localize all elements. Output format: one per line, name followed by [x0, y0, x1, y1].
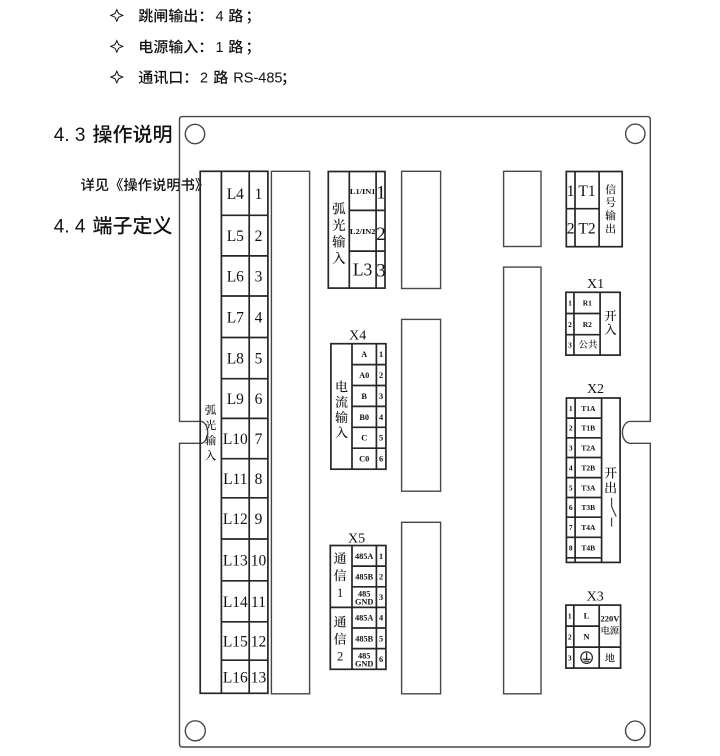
svg-text:X4: X4 — [349, 328, 366, 343]
svg-text:L4: L4 — [227, 186, 244, 203]
svg-text:C0: C0 — [359, 455, 369, 464]
svg-text:B: B — [361, 392, 367, 401]
svg-text:R1: R1 — [583, 299, 592, 308]
svg-text:9: 9 — [255, 511, 263, 528]
svg-text:3: 3 — [568, 341, 572, 350]
svg-text:2: 2 — [376, 224, 386, 245]
svg-text:L1/IN1: L1/IN1 — [350, 187, 376, 196]
svg-text:485A: 485A — [355, 552, 373, 561]
svg-text:X2: X2 — [587, 382, 604, 397]
svg-text:1: 1 — [376, 182, 386, 203]
svg-text:1: 1 — [255, 186, 263, 203]
svg-text:7: 7 — [569, 523, 573, 532]
svg-text:N: N — [583, 632, 590, 642]
svg-text:3: 3 — [568, 653, 572, 662]
svg-text:T4B: T4B — [581, 543, 595, 552]
svg-text:L6: L6 — [227, 269, 244, 286]
svg-text:L15: L15 — [223, 634, 248, 651]
svg-text:3: 3 — [569, 443, 573, 452]
svg-text:3: 3 — [379, 392, 383, 401]
svg-text:C: C — [361, 434, 367, 443]
svg-text:T1: T1 — [578, 183, 595, 200]
svg-text:T3A: T3A — [581, 483, 596, 492]
svg-text:L12: L12 — [223, 511, 248, 528]
svg-text:1: 1 — [215, 40, 223, 56]
svg-text:L16: L16 — [223, 669, 248, 686]
svg-text:2: 2 — [255, 228, 263, 245]
svg-text:4: 4 — [379, 614, 383, 623]
svg-text:T3B: T3B — [581, 503, 595, 512]
svg-text:10: 10 — [251, 553, 267, 570]
svg-text:4: 4 — [379, 413, 383, 422]
svg-text:T4A: T4A — [581, 523, 596, 532]
svg-text:L7: L7 — [227, 309, 244, 326]
svg-text:3: 3 — [379, 593, 383, 602]
svg-text:485B: 485B — [355, 572, 373, 581]
svg-text:4: 4 — [569, 463, 573, 472]
svg-text:L10: L10 — [223, 431, 248, 448]
svg-text:R2: R2 — [583, 320, 592, 329]
svg-text:GND: GND — [355, 660, 373, 669]
svg-text:12: 12 — [251, 634, 267, 651]
svg-text:L: L — [584, 611, 590, 621]
svg-text:L14: L14 — [223, 594, 248, 611]
svg-text:5: 5 — [569, 483, 573, 492]
svg-text:X3: X3 — [587, 589, 604, 604]
svg-text:A0: A0 — [359, 371, 369, 380]
svg-text:A: A — [361, 350, 367, 359]
svg-text:T1A: T1A — [581, 404, 596, 413]
svg-text:2: 2 — [568, 320, 572, 329]
svg-text:5: 5 — [379, 434, 383, 443]
svg-text:T2A: T2A — [581, 443, 596, 452]
svg-text:1: 1 — [379, 350, 383, 359]
svg-text:T2B: T2B — [581, 463, 595, 472]
svg-text:8: 8 — [255, 471, 263, 488]
svg-text:1: 1 — [568, 611, 572, 620]
svg-text:4: 4 — [215, 9, 223, 25]
svg-text:485B: 485B — [355, 634, 373, 643]
svg-text:B0: B0 — [359, 413, 369, 422]
svg-text:L11: L11 — [223, 471, 247, 488]
svg-text:7: 7 — [255, 431, 263, 448]
svg-text:5: 5 — [255, 351, 263, 368]
svg-text:11: 11 — [251, 594, 266, 611]
svg-text:485A: 485A — [355, 614, 373, 623]
svg-text:4. 4: 4. 4 — [54, 217, 86, 238]
svg-text:3: 3 — [376, 260, 386, 281]
svg-text:4: 4 — [255, 309, 263, 326]
svg-text:6: 6 — [255, 391, 263, 408]
svg-text:6: 6 — [379, 655, 383, 664]
svg-text:2: 2 — [337, 650, 343, 664]
svg-text:2: 2 — [567, 221, 575, 238]
svg-text:1: 1 — [337, 586, 343, 600]
svg-text:4. 3: 4. 3 — [54, 125, 86, 146]
svg-text:1: 1 — [569, 404, 573, 413]
svg-text:L2/IN2: L2/IN2 — [350, 227, 376, 236]
svg-text:5: 5 — [379, 634, 383, 643]
svg-text:13: 13 — [251, 669, 267, 686]
svg-text:2: 2 — [569, 424, 573, 433]
svg-text:L9: L9 — [227, 391, 244, 408]
svg-text:220V: 220V — [600, 614, 620, 624]
svg-text:X5: X5 — [348, 531, 365, 546]
svg-text:3: 3 — [255, 269, 263, 286]
svg-text:RS-485: RS-485 — [233, 71, 282, 87]
svg-text:6: 6 — [379, 455, 383, 464]
svg-text:2: 2 — [379, 371, 383, 380]
svg-text:T1B: T1B — [581, 424, 595, 433]
svg-text:T2: T2 — [578, 221, 595, 238]
svg-text:2: 2 — [200, 71, 208, 87]
svg-text:1: 1 — [568, 299, 572, 308]
svg-text:L13: L13 — [223, 553, 248, 570]
svg-text:GND: GND — [355, 598, 373, 607]
svg-text:1: 1 — [379, 552, 383, 561]
svg-text:6: 6 — [569, 503, 573, 512]
svg-text:1: 1 — [567, 183, 575, 200]
svg-text:X1: X1 — [587, 277, 604, 292]
svg-text:2: 2 — [568, 632, 572, 641]
svg-text:2: 2 — [379, 572, 383, 581]
svg-text:L8: L8 — [227, 351, 244, 368]
svg-text:8: 8 — [569, 543, 573, 552]
svg-text:L5: L5 — [227, 228, 244, 245]
svg-text:L3: L3 — [353, 260, 373, 280]
